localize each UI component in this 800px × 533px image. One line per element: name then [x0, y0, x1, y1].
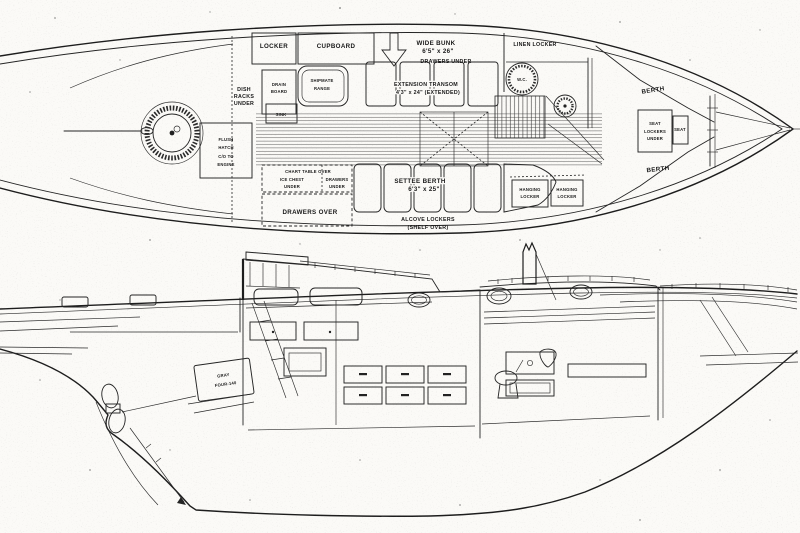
blueprint-scan: FLUSH HATCH C/O TO ENGINE DISH RACKS UND… — [0, 0, 800, 533]
scan-grain-overlay — [0, 0, 800, 533]
boat-accommodation-drawing: FLUSH HATCH C/O TO ENGINE DISH RACKS UND… — [0, 0, 800, 533]
